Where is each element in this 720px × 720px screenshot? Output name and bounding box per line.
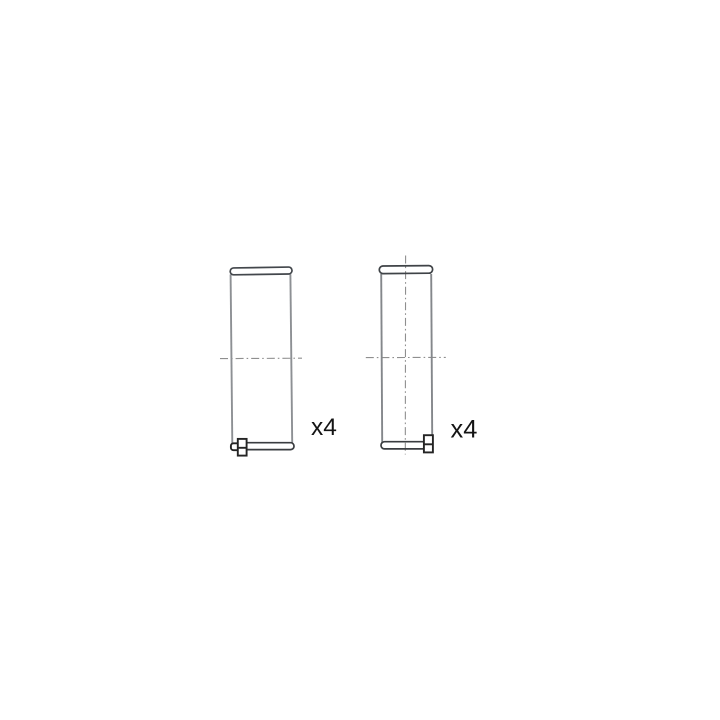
svg-text:x4: x4 [311,414,337,441]
svg-text:x4: x4 [451,416,478,444]
